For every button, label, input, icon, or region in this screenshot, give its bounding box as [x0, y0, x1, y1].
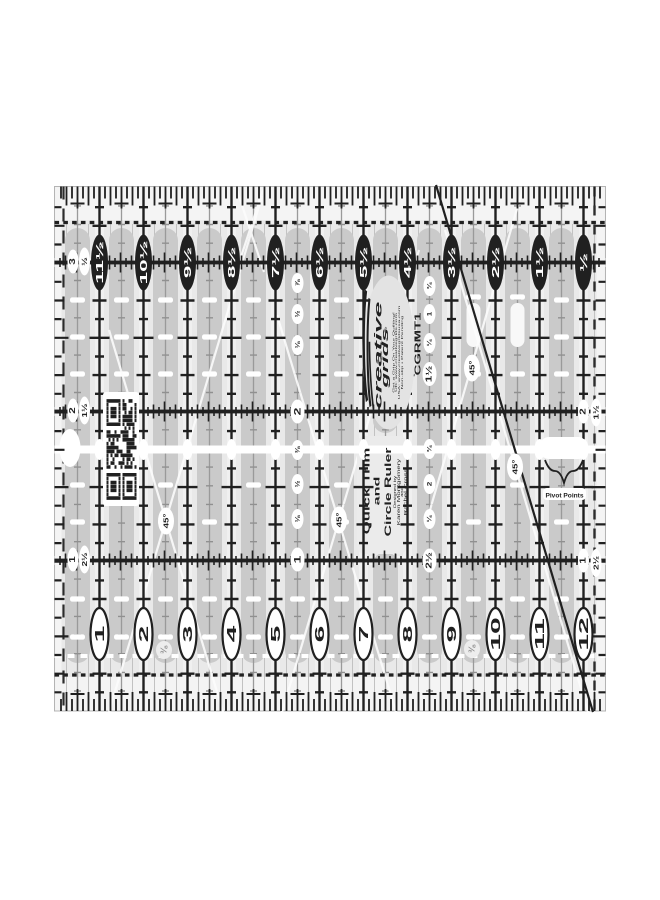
svg-text:¼: ¼ — [426, 339, 434, 347]
svg-text:5: 5 — [268, 625, 282, 642]
svg-text:1: 1 — [426, 312, 434, 317]
svg-text:9: 9 — [444, 626, 458, 643]
svg-text:½: ½ — [294, 311, 302, 318]
svg-text:½: ½ — [80, 257, 88, 265]
svg-text:2: 2 — [69, 407, 78, 414]
svg-text:45°: 45° — [162, 513, 171, 528]
svg-text:Pivot Points: Pivot Points — [545, 493, 583, 500]
svg-text:and: and — [372, 477, 382, 506]
svg-text:1½: 1½ — [592, 405, 600, 419]
svg-text:3: 3 — [180, 626, 194, 643]
svg-text:3½: 3½ — [446, 247, 457, 278]
svg-text:CGRMT1: CGRMT1 — [413, 312, 423, 375]
svg-text:®: ® — [385, 326, 388, 333]
svg-text:⅞: ⅞ — [294, 279, 302, 287]
svg-text:2½: 2½ — [425, 552, 434, 569]
svg-text:⅛: ⅛ — [294, 515, 302, 523]
svg-text:45°: 45° — [468, 360, 477, 375]
svg-text:2½: 2½ — [80, 552, 88, 566]
svg-text:¾: ¾ — [426, 282, 434, 290]
svg-text:grids: grids — [380, 328, 390, 389]
svg-text:2: 2 — [426, 482, 434, 487]
svg-text:⅛: ⅛ — [294, 341, 302, 349]
svg-text:½: ½ — [578, 253, 589, 272]
svg-text:2½: 2½ — [592, 556, 600, 570]
svg-text:1: 1 — [69, 556, 78, 563]
svg-text:10: 10 — [488, 617, 502, 650]
svg-text:Circle Ruler: Circle Ruler — [383, 448, 393, 537]
svg-text:Non-slip • Patent Pending: Non-slip • Patent Pending — [401, 315, 404, 389]
svg-text:6: 6 — [312, 626, 326, 643]
svg-text:9½: 9½ — [182, 247, 193, 278]
svg-text:8½: 8½ — [226, 247, 237, 278]
svg-text:6½: 6½ — [314, 247, 325, 278]
svg-text:2: 2 — [136, 626, 150, 643]
svg-text:7½: 7½ — [270, 247, 281, 278]
svg-text:10½: 10½ — [138, 241, 149, 285]
svg-text:4: 4 — [224, 625, 238, 642]
svg-text:1: 1 — [92, 625, 106, 642]
svg-text:12: 12 — [576, 617, 590, 650]
svg-text:1½: 1½ — [80, 403, 88, 417]
svg-text:45°: 45° — [335, 512, 344, 527]
svg-text:1: 1 — [292, 555, 303, 563]
svg-text:⅜: ⅜ — [159, 645, 168, 654]
svg-text:½: ½ — [294, 481, 302, 488]
svg-text:2: 2 — [579, 408, 588, 415]
svg-text:45°: 45° — [511, 459, 520, 474]
svg-text:Quick Trim: Quick Trim — [362, 448, 372, 535]
svg-text:11½: 11½ — [94, 241, 105, 284]
svg-text:1½: 1½ — [534, 247, 545, 278]
svg-text:11: 11 — [532, 618, 546, 650]
svg-text:2½: 2½ — [490, 247, 501, 278]
svg-text:8: 8 — [400, 625, 414, 642]
svg-text:Rachel Cross: Rachel Cross — [403, 469, 408, 516]
svg-text:⅜: ⅜ — [294, 446, 302, 454]
svg-text:1½: 1½ — [425, 365, 434, 382]
svg-text:1: 1 — [579, 557, 588, 564]
svg-text:⅜: ⅜ — [467, 644, 476, 653]
svg-text:4½: 4½ — [402, 247, 413, 278]
svg-text:¾: ¾ — [426, 445, 434, 453]
svg-text:7: 7 — [356, 626, 370, 643]
svg-text:¼: ¼ — [426, 515, 434, 523]
svg-text:5½: 5½ — [358, 247, 369, 278]
svg-text:2: 2 — [292, 407, 303, 415]
svg-text:3: 3 — [69, 258, 78, 265]
